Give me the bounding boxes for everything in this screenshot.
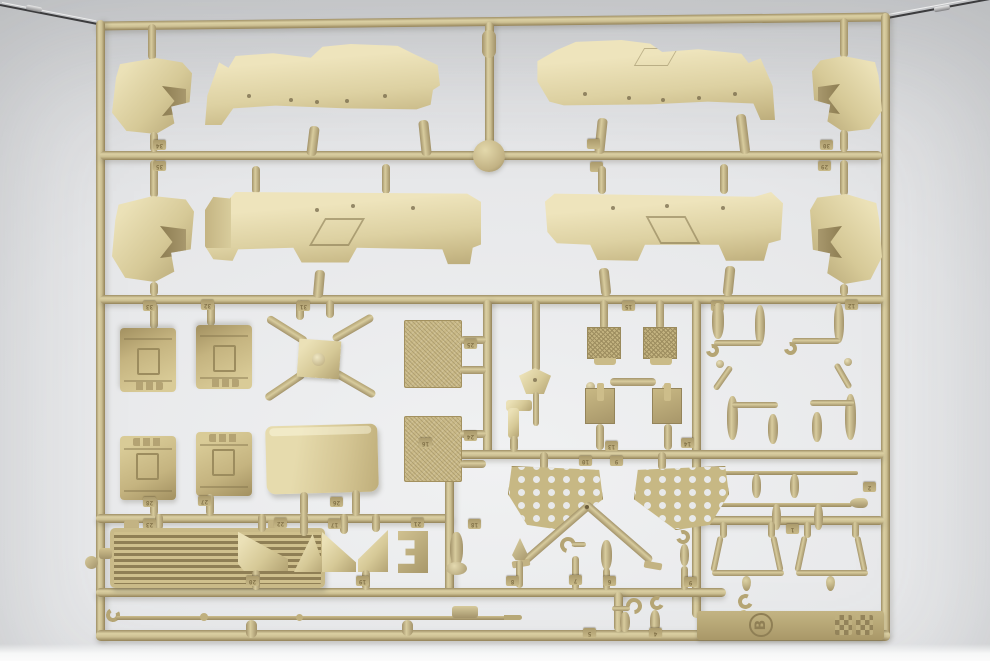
- gate-panel2r-top1: [598, 166, 606, 194]
- linkage-drop: [826, 576, 835, 591]
- jerry-can-ridge: [124, 448, 172, 450]
- sprue-injection-hub: [473, 140, 505, 172]
- part-number-tag-33: 33: [143, 301, 156, 311]
- gate-pedal-2: [656, 300, 664, 330]
- sprue-side-nub: [85, 556, 98, 569]
- linkage-side: [794, 536, 807, 572]
- gate-plate-9: [658, 452, 666, 470]
- part-12-rod: [792, 338, 840, 344]
- part-jerry-can-32: [196, 325, 252, 389]
- part-number-tag-9: 9: [610, 456, 623, 466]
- part-number-tag-13: 13: [605, 441, 618, 451]
- radiator-pipe: [99, 548, 112, 559]
- jerry-can-ridge: [200, 486, 248, 488]
- panel-hole: [627, 96, 631, 100]
- gate-part35-bottom: [150, 282, 158, 296]
- hook-right-post: [680, 544, 689, 566]
- part-number-tag-18: 18: [468, 519, 481, 529]
- part-lever16-shaft: [532, 300, 540, 372]
- part-number-tag-12: 12: [845, 300, 858, 310]
- part-cross-mount-31: [268, 316, 372, 402]
- panel-hole: [289, 98, 293, 102]
- jerry-can-ridge: [200, 335, 248, 337]
- bin-top-highlight: [269, 426, 371, 437]
- part-12-rod-post: [834, 303, 844, 343]
- bracket-lever: [597, 383, 604, 401]
- sprue-letter-badge: B: [749, 613, 773, 637]
- panel-hole: [721, 206, 725, 210]
- lever16-hole: [533, 378, 537, 382]
- part-cap-cylinder-18: [450, 532, 463, 566]
- part-number-tag-15: 15: [622, 301, 635, 311]
- gear-lever-rod: [732, 402, 778, 408]
- gear-lever-rod: [810, 400, 854, 406]
- part-seat-bracket-13: [585, 388, 615, 424]
- gate-part30-top: [840, 18, 848, 58]
- panel-hole: [351, 204, 355, 208]
- linkage-side: [854, 536, 867, 572]
- part-number-tag-5: 5: [583, 628, 596, 638]
- panel-hole: [345, 99, 349, 103]
- part-11-rod: [714, 340, 762, 346]
- gate-wedge: [258, 514, 266, 532]
- sprue-gate-bulge: [482, 30, 496, 58]
- gate-hatch24-b: [460, 460, 486, 468]
- gate-bin-2: [352, 490, 360, 516]
- part-number-tag-19: 19: [356, 576, 369, 586]
- jerry-can-ridge: [124, 490, 172, 492]
- linkage-side: [710, 536, 723, 572]
- gate-panel2r-top2: [720, 164, 728, 194]
- jerry-can-plate: [137, 348, 160, 375]
- jerry-can-handle: [133, 438, 163, 446]
- gate-lever16: [510, 436, 518, 452]
- linkage-drop: [742, 576, 751, 591]
- gate-bracket-14: [664, 424, 672, 450]
- panel-hole: [315, 208, 319, 212]
- part-number-tag-2: 2: [863, 482, 876, 492]
- aframe-apex-hole: [585, 505, 589, 509]
- hook-5-stem: [612, 606, 630, 611]
- jerry-can-ridge: [124, 338, 172, 340]
- hook-5-post: [620, 612, 630, 632]
- white-floor-seam: [0, 644, 990, 661]
- part-number-tag-4: 4: [649, 628, 662, 638]
- part-engine-hatch-24: [404, 416, 462, 482]
- gate-panel2l-top2: [382, 164, 390, 194]
- part-number-tag-29: 29: [818, 161, 831, 171]
- cross-center-knob: [312, 353, 325, 366]
- panel2r-hatch-etch: [646, 216, 701, 244]
- gate-hatch25-b: [460, 366, 486, 374]
- part-number-tag-7: 7: [569, 575, 582, 585]
- part-number-tag-14: 14: [681, 438, 694, 448]
- part-seat-bracket-14: [652, 388, 682, 424]
- tie-rod-bullet: [850, 498, 868, 508]
- jerry-can-ridge: [200, 444, 248, 446]
- part-number-tag-31: 31: [297, 301, 310, 311]
- part-number-tag-26: 26: [330, 497, 343, 507]
- panel2l-hatch-etch: [309, 218, 365, 246]
- panel-hole: [665, 204, 669, 208]
- part-number-tag-17: 17: [328, 519, 341, 529]
- jerry-can-handle: [209, 434, 239, 442]
- part-11-cylinder: [712, 303, 724, 339]
- gate-wedge: [372, 514, 380, 532]
- cross-leg: [331, 313, 375, 343]
- bracket-lever: [664, 383, 671, 401]
- part-number-tag-34: 34: [153, 140, 166, 150]
- gate-panel2l-top1: [252, 166, 260, 194]
- part-engine-hatch-25: [404, 320, 462, 388]
- gate-axle-1: [246, 620, 257, 638]
- pedal-lip: [594, 358, 616, 365]
- part-jerry-can-33: [120, 328, 176, 392]
- pedal-lip: [650, 358, 672, 365]
- gate-pedal-1: [600, 300, 608, 330]
- linkage-side: [770, 536, 783, 572]
- part-pedal-15b: [643, 327, 677, 359]
- axle-collar: [296, 614, 303, 621]
- gear-lever-post2: [768, 414, 778, 444]
- gate-plate-tag: [587, 139, 600, 149]
- part-number-tag-8: 8: [506, 576, 519, 586]
- panel-hole: [411, 206, 415, 210]
- gear-lever-post2: [812, 412, 822, 442]
- part-jerry-can-27: [196, 432, 252, 496]
- gate-part30-bottom: [840, 130, 848, 152]
- gate-part34-top: [148, 24, 156, 60]
- part-cap-18: [446, 562, 467, 575]
- sprue-id-tab: B: [697, 611, 884, 640]
- part-number-tag-10: 10: [579, 456, 592, 466]
- mold-mark-icon: [835, 615, 852, 635]
- part-number-tag-hook: 9: [684, 577, 697, 587]
- axle-tip: [504, 615, 522, 620]
- tie-rod-post: [752, 474, 761, 498]
- mold-mark-icon: [856, 615, 873, 635]
- gate-bracket-13: [596, 424, 604, 450]
- gear-lever-ball: [844, 358, 852, 366]
- part-brake-linkage-1a: [710, 522, 788, 594]
- part-number-tag-27: 27: [198, 496, 211, 506]
- panel-hole: [315, 100, 319, 104]
- panel-hole: [247, 94, 251, 98]
- axle-collar: [200, 613, 208, 621]
- part-11-rod-post: [755, 305, 765, 345]
- photo-canvas: 34 30 35: [0, 0, 990, 661]
- elbow-vertical: [508, 408, 519, 438]
- part-number-tag-22: 22: [274, 518, 287, 528]
- panel-hole: [697, 96, 701, 100]
- part-jerry-can-28: [120, 436, 176, 500]
- part-tie-rod-3: [716, 471, 858, 475]
- gate-part29-bottom: [840, 284, 848, 296]
- part-number-tag-30: 30: [820, 140, 833, 150]
- sprue-rail-h4: [96, 588, 726, 597]
- panel-hole: [611, 206, 615, 210]
- sprue-rail-right-section: [692, 300, 701, 618]
- hook-7-stem: [572, 542, 586, 547]
- panel-hole: [661, 98, 665, 102]
- sprue-rail-h3: [418, 450, 884, 459]
- axle-center-fitting: [452, 606, 478, 618]
- part-number-tag-21: 21: [411, 518, 424, 528]
- part-pedal-15a: [587, 327, 621, 359]
- part-number-tag-16: 16: [419, 438, 432, 448]
- sprue-rail-right: [881, 13, 890, 641]
- jerry-can-plate: [136, 453, 159, 480]
- part-number-tag-35: 35: [153, 161, 166, 171]
- part-lever16-tip: [533, 392, 539, 426]
- part-number-tag-20: 20: [246, 576, 259, 586]
- part-lever16-elbow: [506, 400, 532, 438]
- part-brake-linkage-1b: [794, 522, 872, 594]
- gate-wedge: [340, 514, 348, 534]
- tie-rod-post: [790, 474, 799, 498]
- linkage-bar: [712, 570, 784, 576]
- sprue-rail-h2: [100, 295, 884, 304]
- part-number-tag-24: 24: [464, 431, 477, 441]
- jerry-can-plate: [212, 449, 235, 476]
- panel-hole: [583, 92, 587, 96]
- cross-leg: [333, 369, 377, 399]
- part-number-tag-6: 6: [603, 576, 616, 586]
- part-stowage-bin-26: [265, 424, 379, 495]
- panel-hole: [383, 94, 387, 98]
- gear-lever-ball: [716, 360, 724, 368]
- part-number-tag-28: 28: [143, 497, 156, 507]
- gate-part29-top: [840, 160, 848, 196]
- panel-hole: [733, 92, 737, 96]
- part-number-tag-32: 32: [201, 300, 214, 310]
- part-tie-rod-2: [716, 503, 852, 507]
- jerry-can-handle: [133, 382, 163, 390]
- part-radiator-23: [110, 528, 325, 588]
- part-number-tag-25: 25: [464, 339, 477, 349]
- jerry-can-handle: [209, 379, 239, 387]
- linkage-bar: [796, 570, 868, 576]
- gate-axle-2: [402, 620, 413, 636]
- gate-wedge: [300, 514, 308, 536]
- part-pin-6: [601, 540, 612, 570]
- bracket-bridge: [610, 378, 656, 386]
- gate-bin-1: [300, 492, 308, 516]
- jerry-can-plate: [213, 345, 236, 372]
